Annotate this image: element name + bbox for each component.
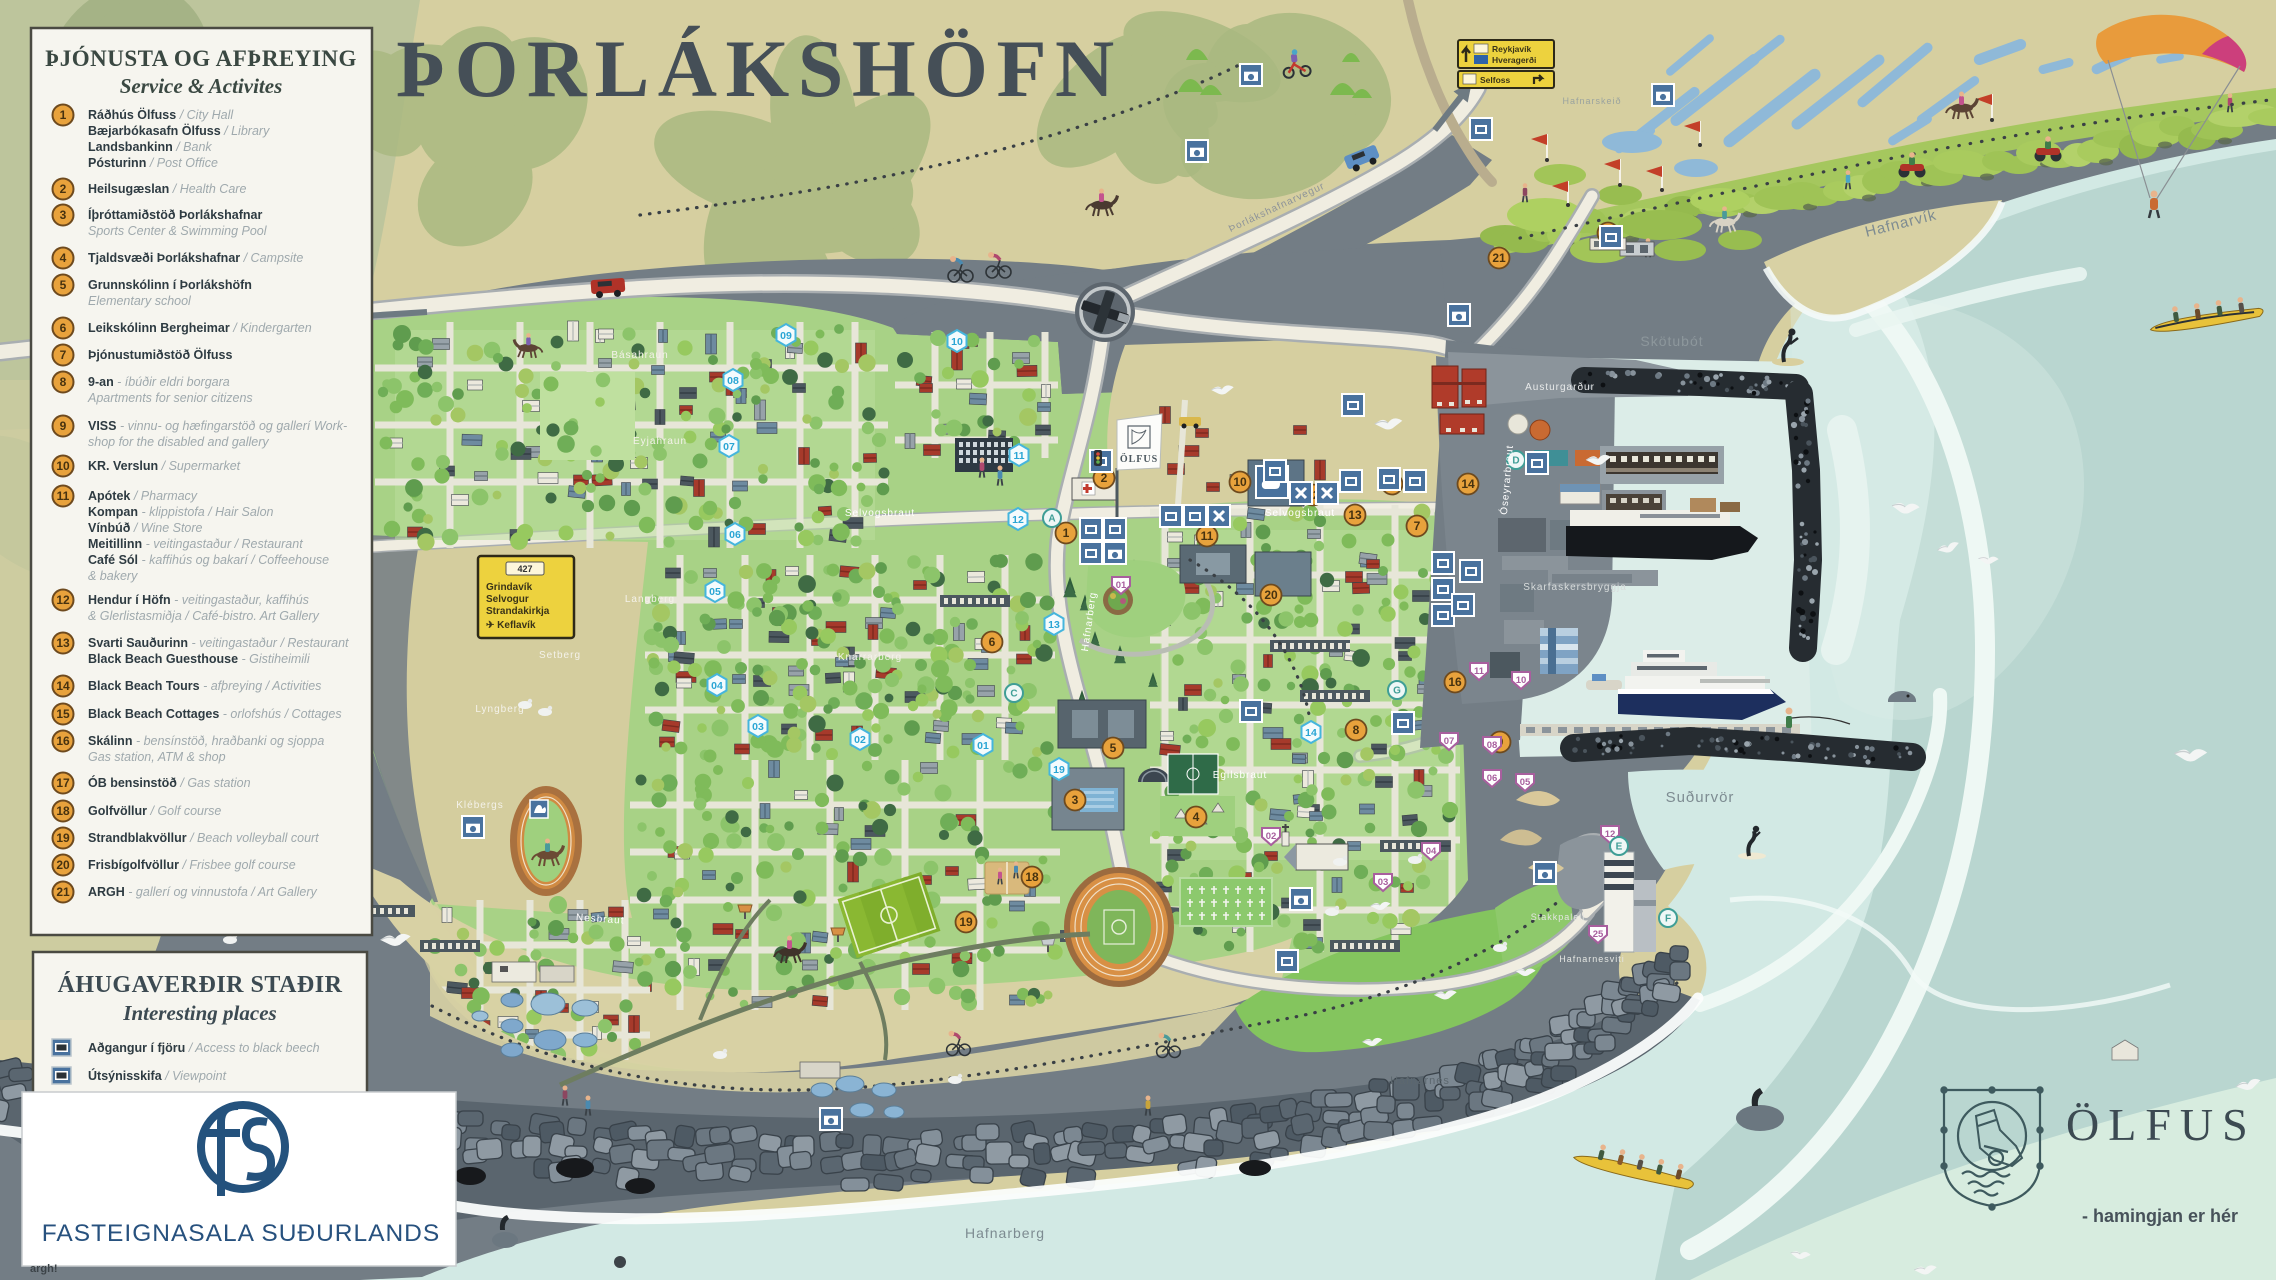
svg-text:15: 15 <box>56 707 70 721</box>
svg-text:7: 7 <box>60 348 67 362</box>
svg-text:Black Beach Guesthouse - Gisti: Black Beach Guesthouse - Gistiheimili <box>88 652 311 666</box>
svg-text:427: 427 <box>517 564 532 574</box>
svg-text:02: 02 <box>854 734 866 746</box>
svg-text:4: 4 <box>1193 810 1200 824</box>
svg-text:Austurgarður: Austurgarður <box>1525 381 1595 393</box>
svg-text:12: 12 <box>56 593 70 607</box>
svg-text:16: 16 <box>56 734 70 748</box>
svg-text:18: 18 <box>56 804 70 818</box>
svg-text:08: 08 <box>1487 740 1498 751</box>
svg-text:Eyjahraun: Eyjahraun <box>633 436 687 447</box>
svg-text:10: 10 <box>1516 675 1527 686</box>
svg-text:11: 11 <box>57 489 70 503</box>
svg-text:Strandakirkja: Strandakirkja <box>486 606 550 617</box>
svg-text:25: 25 <box>1593 929 1604 940</box>
svg-text:09: 09 <box>780 330 792 342</box>
svg-text:Leikskólinn Bergheimar / Kinde: Leikskólinn Bergheimar / Kindergarten <box>88 321 312 335</box>
svg-text:Reykjavík: Reykjavík <box>1492 44 1531 54</box>
svg-text:FASTEIGNASALA SUÐURLANDS: FASTEIGNASALA SUÐURLANDS <box>42 1220 440 1247</box>
svg-text:18: 18 <box>1025 870 1039 884</box>
svg-text:14: 14 <box>56 679 70 693</box>
svg-text:14: 14 <box>1305 727 1317 739</box>
svg-text:Meitillinn - veitingastaður /: Meitillinn - veitingastaður / Restaurant <box>88 537 303 551</box>
svg-text:14: 14 <box>1461 477 1475 491</box>
svg-text:ÖLFUS: ÖLFUS <box>1120 452 1158 465</box>
svg-text:F: F <box>1665 914 1671 925</box>
svg-text:20: 20 <box>56 858 70 872</box>
svg-text:Service & Activites: Service & Activites <box>120 74 283 98</box>
svg-text:Hafnarskeið: Hafnarskeið <box>1562 96 1621 106</box>
svg-text:Hafnarnes: Hafnarnes <box>1390 1075 1450 1087</box>
svg-text:Sports Center & Swimming Pool: Sports Center & Swimming Pool <box>88 224 268 238</box>
svg-text:8: 8 <box>60 375 67 389</box>
svg-text:Stakkpalell: Stakkpalell <box>1531 912 1586 922</box>
svg-text:19: 19 <box>1053 764 1065 776</box>
svg-text:& bakery: & bakery <box>88 569 138 583</box>
svg-text:KR. Verslun / Supermarket: KR. Verslun / Supermarket <box>88 459 241 473</box>
svg-text:9: 9 <box>60 419 67 433</box>
svg-text:Café Sól - kaffihús og bakarí: Café Sól - kaffihús og bakarí / Coffeeho… <box>88 553 329 567</box>
svg-text:21: 21 <box>56 885 70 899</box>
svg-text:05: 05 <box>1520 777 1531 788</box>
svg-text:Skötubót: Skötubót <box>1640 333 1703 349</box>
svg-text:5: 5 <box>1110 741 1117 755</box>
svg-text:06: 06 <box>1487 773 1498 784</box>
svg-text:Skálinn - bensínstöð, hraðbank: Skálinn - bensínstöð, hraðbanki og sjopp… <box>88 734 324 748</box>
svg-text:13: 13 <box>56 636 70 650</box>
svg-text:2: 2 <box>1101 471 1108 485</box>
svg-text:Hafnarberg: Hafnarberg <box>965 1225 1045 1241</box>
svg-text:Hafnarnesviti: Hafnarnesviti <box>1559 954 1625 964</box>
svg-text:19: 19 <box>959 915 973 929</box>
svg-text:21: 21 <box>1492 251 1506 265</box>
svg-text:Elementary school: Elementary school <box>88 294 192 308</box>
svg-text:13: 13 <box>1048 619 1060 631</box>
svg-text:6: 6 <box>989 635 996 649</box>
svg-text:Útsýnisskifa / Viewpoint: Útsýnisskifa / Viewpoint <box>88 1068 227 1083</box>
svg-text:Svarti Sauðurinn - veitingasta: Svarti Sauðurinn - veitingastaður / Rest… <box>88 636 349 650</box>
svg-text:05: 05 <box>709 586 721 598</box>
svg-text:Black Beach Tours - afþreying: Black Beach Tours - afþreying / Activiti… <box>88 679 321 693</box>
svg-text:ÞJÓNUSTA OG AFÞREYING: ÞJÓNUSTA OG AFÞREYING <box>45 45 357 71</box>
svg-text:C: C <box>1010 689 1017 700</box>
svg-text:07: 07 <box>1444 736 1455 747</box>
svg-text:Básahraun: Básahraun <box>611 350 668 361</box>
svg-text:06: 06 <box>729 529 741 541</box>
svg-text:Setberg: Setberg <box>539 650 581 661</box>
svg-text:Pósturinn / Post Office: Pósturinn / Post Office <box>88 156 218 170</box>
svg-text:Apótek / Pharmacy: Apótek / Pharmacy <box>88 489 198 503</box>
svg-text:8: 8 <box>1353 723 1360 737</box>
svg-text:10: 10 <box>1233 475 1247 489</box>
svg-text:1: 1 <box>1063 526 1070 540</box>
svg-text:Apartments for senior citizens: Apartments for senior citizens <box>87 391 253 405</box>
svg-text:7: 7 <box>1414 519 1421 533</box>
svg-text:Langberg: Langberg <box>625 594 675 605</box>
svg-text:VISS - vinnu- og hæfingarstöð: VISS - vinnu- og hæfingarstöð og gallerí… <box>88 419 347 433</box>
svg-text:G: G <box>1393 686 1401 697</box>
svg-text:6: 6 <box>60 321 67 335</box>
svg-text:Skarfaskersbryggja: Skarfaskersbryggja <box>1523 582 1627 593</box>
svg-text:11: 11 <box>1201 529 1214 543</box>
svg-text:ÞORLÁKSHÖFN: ÞORLÁKSHÖFN <box>396 23 1123 114</box>
svg-text:02: 02 <box>1266 831 1277 842</box>
svg-text:4: 4 <box>60 251 67 265</box>
svg-text:Black Beach Cottages - orlofsh: Black Beach Cottages - orlofshús / Cotta… <box>88 707 342 721</box>
svg-text:16: 16 <box>1448 675 1462 689</box>
svg-text:07: 07 <box>723 441 735 453</box>
svg-text:19: 19 <box>56 831 70 845</box>
svg-text:Frisbígolfvöllur / Frisbee gol: Frisbígolfvöllur / Frisbee golf course <box>88 858 296 872</box>
svg-text:1: 1 <box>60 108 67 122</box>
svg-text:Ráðhús Ölfuss / City Hall: Ráðhús Ölfuss / City Hall <box>88 107 234 122</box>
svg-text:Grindavík: Grindavík <box>486 582 533 593</box>
svg-text:Lyngberg: Lyngberg <box>475 704 524 715</box>
svg-text:11: 11 <box>1474 666 1485 677</box>
svg-text:Klébergs: Klébergs <box>456 800 503 811</box>
svg-text:04: 04 <box>1426 846 1437 857</box>
svg-text:argh!: argh! <box>30 1263 58 1275</box>
svg-text:08: 08 <box>727 375 739 387</box>
svg-text:- hamingjan er hér: - hamingjan er hér <box>2082 1206 2238 1226</box>
svg-text:17: 17 <box>56 776 70 790</box>
svg-text:04: 04 <box>711 680 723 692</box>
svg-text:Tjaldsvæði Þorlákshafnar / Cam: Tjaldsvæði Þorlákshafnar / Campsite <box>88 251 303 265</box>
svg-text:20: 20 <box>1264 588 1278 602</box>
svg-text:11: 11 <box>1013 450 1024 462</box>
svg-text:Selvogsbraut: Selvogsbraut <box>1265 508 1335 519</box>
svg-text:01: 01 <box>977 740 989 752</box>
svg-text:Suðurvör: Suðurvör <box>1666 789 1735 806</box>
svg-text:Landsbankinn / Bank: Landsbankinn / Bank <box>88 140 212 154</box>
svg-text:Bæjarbókasafn Ölfuss / Library: Bæjarbókasafn Ölfuss / Library <box>88 123 270 138</box>
svg-text:Interesting places: Interesting places <box>122 1001 276 1025</box>
svg-text:& Glerlistasmiðja / Café-bistr: & Glerlistasmiðja / Café-bistro. Art Gal… <box>88 609 320 623</box>
svg-text:13: 13 <box>1348 508 1362 522</box>
svg-text:03: 03 <box>752 721 764 733</box>
svg-text:ÓB bensinstöð / Gas station: ÓB bensinstöð / Gas station <box>88 775 251 790</box>
svg-text:Þjónustumiðstöð Ölfuss: Þjónustumiðstöð Ölfuss <box>88 347 232 362</box>
svg-text:Selfoss: Selfoss <box>1480 75 1511 85</box>
svg-text:Heilsugæslan / Health Care: Heilsugæslan / Health Care <box>88 182 246 196</box>
svg-text:Grunnskólinn í Þorlákshöfn: Grunnskólinn í Þorlákshöfn <box>88 278 252 292</box>
svg-text:Kompan - klippistofa / Hair Sa: Kompan - klippistofa / Hair Salon <box>88 505 274 519</box>
svg-text:Selvogsbraut: Selvogsbraut <box>845 508 915 519</box>
svg-text:3: 3 <box>1072 793 1079 807</box>
svg-text:Vínbúð / Wine Store: Vínbúð / Wine Store <box>88 521 203 535</box>
svg-text:ÁHUGAVERÐIR STAÐIR: ÁHUGAVERÐIR STAÐIR <box>58 972 343 998</box>
svg-text:Knarrarberg: Knarrarberg <box>838 652 902 663</box>
svg-text:ARGH - gallerí og vinnustofa /: ARGH - gallerí og vinnustofa / Art Galle… <box>88 885 318 899</box>
svg-text:10: 10 <box>951 336 963 348</box>
svg-text:Hveragerði: Hveragerði <box>1492 55 1536 65</box>
svg-text:Hendur í Höfn - veitingastaður: Hendur í Höfn - veitingastaður, kaffihús <box>88 593 309 607</box>
svg-text:Aðgangur í fjöru / Access to b: Aðgangur í fjöru / Access to black beech <box>88 1041 320 1055</box>
svg-text:Selvogur: Selvogur <box>486 594 529 605</box>
svg-text:10: 10 <box>56 459 70 473</box>
svg-text:shop for the disabled and gall: shop for the disabled and gallery <box>88 435 269 449</box>
svg-text:Gas station, ATM & shop: Gas station, ATM & shop <box>88 750 226 764</box>
svg-text:Egilsbraut: Egilsbraut <box>1213 770 1267 781</box>
svg-text:01: 01 <box>1116 580 1127 591</box>
svg-text:5: 5 <box>60 278 67 292</box>
svg-text:12: 12 <box>1012 514 1024 526</box>
svg-text:Íþróttamiðstöð Þorlákshafnar: Íþróttamiðstöð Þorlákshafnar <box>88 207 262 222</box>
svg-text:Golfvöllur / Golf course: Golfvöllur / Golf course <box>88 804 221 818</box>
svg-text:2: 2 <box>60 182 67 196</box>
svg-text:✈ Keflavík: ✈ Keflavík <box>486 620 536 631</box>
svg-text:A: A <box>1048 514 1055 525</box>
svg-text:03: 03 <box>1378 877 1389 888</box>
svg-text:E: E <box>1616 842 1623 853</box>
svg-text:3: 3 <box>60 208 67 222</box>
svg-text:Strandblakvöllur / Beach volle: Strandblakvöllur / Beach volleyball cour… <box>88 831 319 845</box>
svg-text:ÖLFUS: ÖLFUS <box>2066 1099 2257 1150</box>
svg-text:9-an - íbúðir eldri borgara: 9-an - íbúðir eldri borgara <box>88 375 230 389</box>
